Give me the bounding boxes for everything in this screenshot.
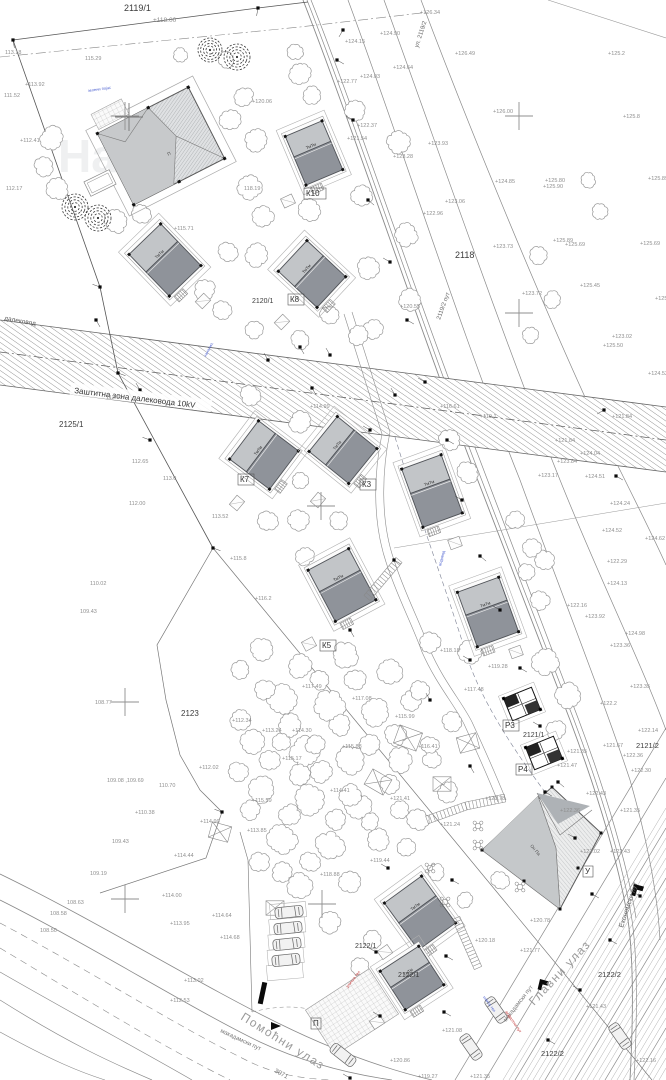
svg-text:115.29: 115.29 [85, 56, 101, 62]
svg-text:+121.08: +121.08 [442, 1028, 462, 1034]
svg-text:+120.55: +120.55 [400, 304, 420, 310]
svg-text:+123.72: +123.72 [522, 291, 542, 297]
svg-text:2122/1: 2122/1 [355, 943, 377, 950]
svg-text:+125.69: +125.69 [640, 241, 660, 247]
svg-text:109.08 ,109.69: 109.08 ,109.69 [107, 778, 144, 784]
svg-text:+115.71: +115.71 [174, 226, 194, 232]
svg-text:+122.16: +122.16 [636, 1058, 656, 1064]
svg-text:108.77: 108.77 [95, 700, 112, 706]
svg-text:+122.16: +122.16 [567, 603, 587, 609]
svg-text:108.63: 108.63 [67, 900, 84, 906]
svg-text:+113.24: +113.24 [262, 728, 282, 734]
svg-text:+125.80: +125.80 [545, 178, 565, 184]
svg-text:+121.54: +121.54 [347, 136, 367, 142]
svg-text:112.00: 112.00 [129, 501, 145, 507]
svg-text:+125.50: +125.50 [603, 343, 623, 349]
svg-text:112.60: 112.60 [106, 395, 122, 401]
svg-text:+118.18: +118.18 [440, 648, 460, 654]
svg-text:2121/2: 2121/2 [636, 741, 659, 750]
svg-text:110.70: 110.70 [159, 783, 175, 789]
svg-text:+124.64: +124.64 [393, 65, 413, 71]
svg-text:111.52: 111.52 [4, 93, 20, 99]
svg-text:+124.90: +124.90 [380, 31, 400, 37]
svg-text:+126.49: +126.49 [455, 51, 475, 57]
svg-text:+121.84: +121.84 [555, 438, 575, 444]
svg-text:+123.93: +123.93 [428, 141, 448, 147]
svg-text:+115.59: +115.59 [252, 798, 272, 804]
svg-text:+118.00: +118.00 [153, 17, 177, 24]
svg-text:2122/1: 2122/1 [398, 972, 420, 979]
svg-text:+123.17: +123.17 [538, 473, 558, 479]
svg-text:К10: К10 [306, 189, 320, 198]
svg-text:+114.30: +114.30 [292, 728, 312, 734]
svg-text:2123: 2123 [181, 709, 199, 718]
svg-text:+114.41: +114.41 [330, 788, 350, 794]
svg-text:+115.88: +115.88 [342, 744, 362, 750]
svg-text:+119.28: +119.28 [488, 664, 508, 670]
svg-text:+114.64: +114.64 [212, 913, 232, 919]
svg-text:+123.36: +123.36 [610, 643, 630, 649]
svg-text:+123.73: +123.73 [493, 244, 513, 250]
svg-text:+122.37: +122.37 [357, 123, 377, 129]
svg-text:+117.49: +117.49 [302, 684, 322, 690]
svg-text:+122.02: +122.02 [580, 849, 600, 855]
svg-text:+126.00: +126.00 [493, 109, 513, 115]
svg-text:2125/1: 2125/1 [59, 420, 84, 429]
svg-text:К3: К3 [362, 480, 372, 489]
svg-text:+123.28: +123.28 [393, 154, 413, 160]
svg-text:+120.78: +120.78 [530, 918, 550, 924]
svg-text:+122.29: +122.29 [607, 559, 627, 565]
svg-text:+125.90: +125.90 [543, 184, 563, 190]
svg-text:108.50: 108.50 [40, 928, 57, 934]
svg-text:+110.38: +110.38 [135, 810, 155, 816]
svg-text:К7: К7 [240, 475, 250, 484]
svg-text:+114.00: +114.00 [162, 893, 182, 899]
svg-text:+123.84: +123.84 [557, 459, 577, 465]
svg-text:+124.52: +124.52 [648, 371, 666, 377]
svg-text:+125.4: +125.4 [655, 296, 666, 302]
svg-text:+123.35: +123.35 [630, 684, 650, 690]
svg-text:+116.41: +116.41 [418, 744, 438, 750]
svg-text:113.18: 113.18 [5, 50, 21, 56]
svg-text:+125.2: +125.2 [608, 51, 625, 57]
svg-text:+124.85: +124.85 [495, 179, 515, 185]
svg-text:+122.14: +122.14 [638, 728, 658, 734]
svg-text:+122.43: +122.43 [586, 791, 606, 797]
svg-text:110.02: 110.02 [90, 581, 106, 587]
svg-text:+124.51: +124.51 [585, 474, 605, 480]
svg-text:2121/1: 2121/1 [523, 732, 545, 739]
svg-text:+125.45: +125.45 [580, 283, 600, 289]
svg-text:+114.68: +114.68 [220, 935, 240, 941]
svg-text:+120.86: +120.86 [390, 1058, 410, 1064]
svg-text:+124.52: +124.52 [602, 528, 622, 534]
svg-text:+112.53: +112.53 [170, 998, 190, 1004]
svg-text:+115.17: +115.17 [282, 756, 302, 762]
svg-text:+125.8: +125.8 [623, 114, 640, 120]
svg-text:2118: 2118 [455, 250, 474, 260]
svg-text:+124.15: +124.15 [345, 39, 365, 45]
svg-text:+124.98: +124.98 [625, 631, 645, 637]
svg-text:+124.62: +124.62 [645, 536, 665, 542]
svg-text:+125.89: +125.89 [553, 238, 573, 244]
svg-text:К8: К8 [290, 295, 300, 304]
svg-text:+121.35: +121.35 [567, 749, 587, 755]
svg-text:109.43: 109.43 [80, 609, 97, 615]
svg-text:+120.18: +120.18 [475, 938, 495, 944]
svg-text:+117.08: +117.08 [352, 696, 372, 702]
svg-text:+123.02: +123.02 [612, 334, 632, 340]
svg-text:+114.99: +114.99 [310, 404, 330, 410]
svg-text:109.43: 109.43 [112, 839, 129, 845]
svg-text:+125.89: +125.89 [648, 176, 666, 182]
svg-text:+122.43: +122.43 [610, 849, 630, 855]
svg-text:+118.88: +118.88 [320, 872, 340, 878]
svg-text:+113.85: +113.85 [247, 828, 267, 834]
svg-text:+121.24: +121.24 [440, 822, 460, 828]
svg-text:109.19: 109.19 [90, 871, 107, 877]
svg-text:+116.61: +116.61 [440, 404, 460, 410]
svg-text:+113.02: +113.02 [184, 978, 204, 984]
svg-text:+124.03: +124.03 [360, 74, 380, 80]
svg-text:2122/2: 2122/2 [541, 1049, 564, 1058]
svg-text:108.58: 108.58 [50, 911, 67, 917]
svg-text:+124.13: +124.13 [607, 581, 627, 587]
svg-text:+119.27: +119.27 [418, 1074, 438, 1080]
svg-text:+115.99: +115.99 [395, 714, 415, 720]
svg-text:2119/1: 2119/1 [124, 3, 151, 13]
svg-text:+122.30: +122.30 [631, 768, 651, 774]
svg-text:113.52: 113.52 [212, 514, 228, 520]
svg-text:+112.02: +112.02 [199, 765, 219, 771]
svg-text:+122.77: +122.77 [337, 79, 357, 85]
svg-text:+121.77: +121.77 [520, 948, 540, 954]
svg-text:+121.35: +121.35 [470, 1074, 490, 1080]
svg-text:П: П [313, 1019, 319, 1028]
svg-text:+124.24: +124.24 [610, 501, 630, 507]
svg-text:+120.06: +120.06 [252, 99, 272, 105]
svg-text:+119.44: +119.44 [370, 858, 390, 864]
svg-text:118.19: 118.19 [244, 186, 260, 192]
svg-text:+122.2: +122.2 [600, 701, 617, 707]
svg-text:+121.41: +121.41 [390, 796, 410, 802]
svg-text:2122/2: 2122/2 [598, 970, 621, 979]
svg-text:+121.84: +121.84 [612, 414, 632, 420]
svg-text:+124.04: +124.04 [580, 451, 600, 457]
svg-text:+113.95: +113.95 [170, 921, 190, 927]
svg-text:+122.96: +122.96 [423, 211, 443, 217]
svg-text:К5: К5 [322, 641, 332, 650]
svg-text:+112.34: +112.34 [232, 718, 252, 724]
svg-text:+121.47: +121.47 [557, 763, 577, 769]
svg-text:+122.36: +122.36 [623, 753, 643, 759]
svg-text:+121.67: +121.67 [603, 743, 623, 749]
svg-text:+112.41: +112.41 [20, 138, 40, 144]
svg-text:+123.06: +123.06 [445, 199, 465, 205]
svg-text:+121.43: +121.43 [586, 1004, 606, 1010]
svg-text:112.17: 112.17 [6, 186, 22, 192]
svg-text:+123.92: +123.92 [585, 614, 605, 620]
svg-text:+117.48: +117.48 [464, 687, 484, 693]
svg-text:2120/1: 2120/1 [252, 298, 274, 305]
svg-text:+116.2: +116.2 [255, 596, 272, 602]
svg-text:+114.44: +114.44 [174, 853, 194, 859]
svg-text:Р3: Р3 [505, 721, 515, 730]
svg-text:+121.35: +121.35 [620, 808, 640, 814]
svg-text:113.0: 113.0 [163, 476, 176, 482]
svg-text:+114.90: +114.90 [200, 819, 220, 825]
svg-text:Р4: Р4 [518, 765, 528, 774]
svg-text:112.65: 112.65 [132, 459, 148, 465]
svg-text:+122.36: +122.36 [560, 808, 580, 814]
svg-text:+115.8: +115.8 [230, 556, 247, 562]
svg-text:+119.1: +119.1 [480, 414, 497, 420]
svg-text:+113.92: +113.92 [25, 82, 45, 88]
svg-text:+126.34: +126.34 [420, 10, 440, 16]
svg-text:+120.78: +120.78 [485, 796, 505, 802]
